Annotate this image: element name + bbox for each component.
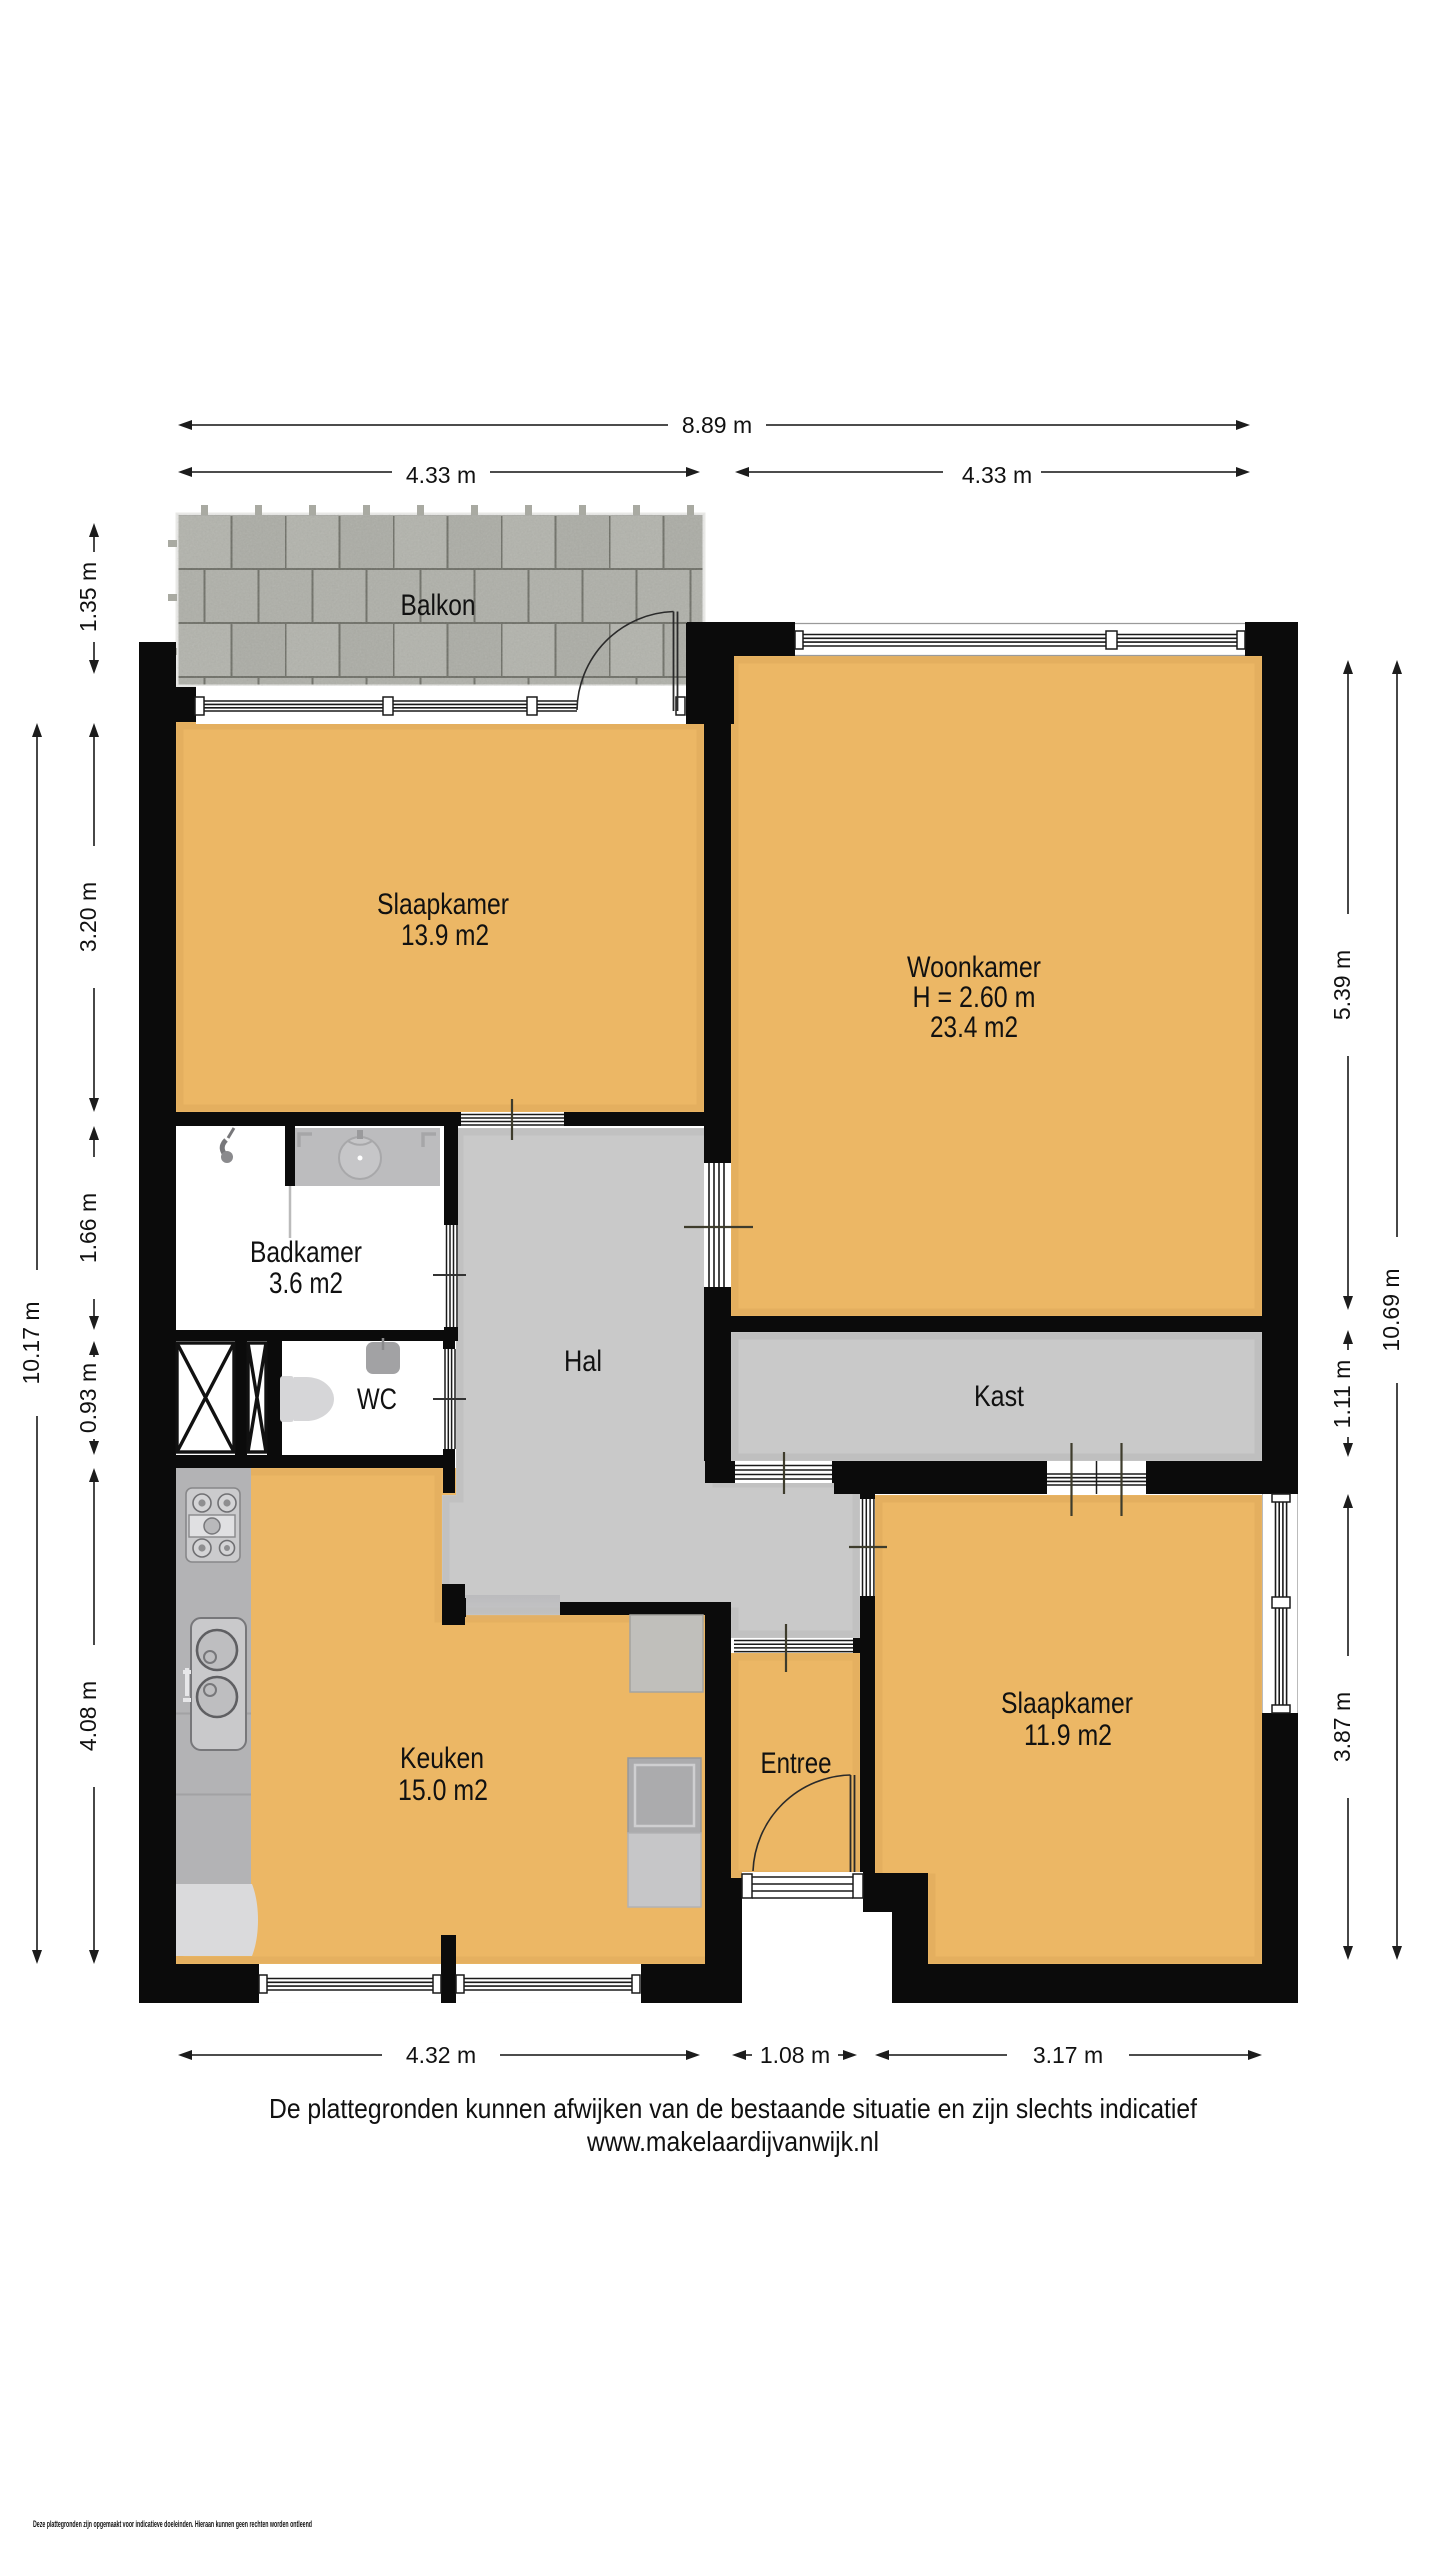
svg-text:4.33 m: 4.33 m <box>406 462 476 488</box>
svg-text:13.9 m2: 13.9 m2 <box>401 919 489 952</box>
svg-text:4.32 m: 4.32 m <box>406 2042 476 2068</box>
svg-text:3.87 m: 3.87 m <box>1329 1692 1355 1762</box>
svg-text:Badkamer: Badkamer <box>250 1236 362 1269</box>
svg-text:Keuken: Keuken <box>400 1742 484 1775</box>
svg-text:3.17 m: 3.17 m <box>1033 2042 1103 2068</box>
svg-text:Hal: Hal <box>564 1345 602 1378</box>
svg-text:De plattegronden kunnen afwijk: De plattegronden kunnen afwijken van de … <box>269 2093 1197 2124</box>
svg-text:1.66 m: 1.66 m <box>75 1193 101 1263</box>
svg-text:4.08 m: 4.08 m <box>75 1681 101 1751</box>
svg-text:10.17 m: 10.17 m <box>18 1301 44 1384</box>
svg-text:3.20 m: 3.20 m <box>75 882 101 952</box>
svg-text:Slaapkamer: Slaapkamer <box>1001 1687 1133 1720</box>
svg-text:0.93 m: 0.93 m <box>75 1363 101 1433</box>
svg-text:10.69 m: 10.69 m <box>1378 1268 1404 1351</box>
svg-text:Kast: Kast <box>974 1380 1025 1413</box>
svg-text:Entree: Entree <box>761 1747 832 1780</box>
svg-text:1.08 m: 1.08 m <box>760 2042 830 2068</box>
svg-text:Woonkamer: Woonkamer <box>907 951 1041 984</box>
svg-text:Slaapkamer: Slaapkamer <box>377 888 509 921</box>
svg-text:15.0 m2: 15.0 m2 <box>398 1774 488 1807</box>
svg-text:Balkon: Balkon <box>401 589 476 622</box>
svg-text:WC: WC <box>357 1383 397 1416</box>
svg-text:1.35 m: 1.35 m <box>75 562 101 632</box>
svg-text:Deze plattegronden zijn opgema: Deze plattegronden zijn opgemaakt voor i… <box>33 2519 312 2529</box>
svg-text:11.9 m2: 11.9 m2 <box>1024 1719 1112 1752</box>
svg-text:5.39 m: 5.39 m <box>1329 950 1355 1020</box>
svg-text:1.11 m: 1.11 m <box>1329 1360 1355 1429</box>
svg-text:8.89 m: 8.89 m <box>682 412 752 438</box>
svg-text:www.makelaardijvanwijk.nl: www.makelaardijvanwijk.nl <box>586 2126 879 2157</box>
svg-text:23.4 m2: 23.4 m2 <box>930 1011 1018 1044</box>
svg-text:3.6 m2: 3.6 m2 <box>269 1267 343 1300</box>
svg-text:H = 2.60 m: H = 2.60 m <box>913 981 1036 1014</box>
svg-text:4.33 m: 4.33 m <box>962 462 1032 488</box>
